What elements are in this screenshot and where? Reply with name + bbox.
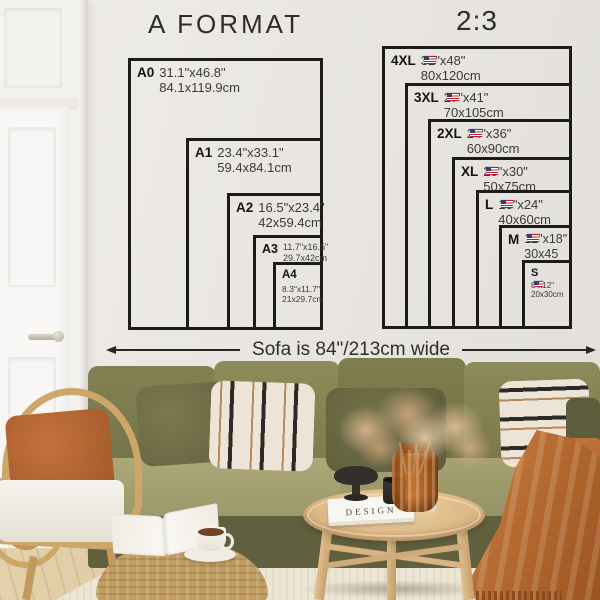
bowl-foot (344, 494, 368, 501)
size-dims-l: 16"x24"40x60cm (498, 197, 567, 228)
size-label-4xl: 4XL (391, 53, 416, 84)
us-flag-icon (470, 129, 482, 137)
size-label-a1: A1 (195, 145, 212, 176)
poster-size-guide-image: A FORMAT A031.1"x46.8"84.1x119.9cm A123.… (0, 0, 600, 600)
size-dims-s: 8"x12"20x30cm (531, 281, 567, 300)
us-flag-icon (527, 234, 539, 242)
coffee-cup (196, 527, 226, 551)
size-dims-a4: 8.3"x11.7"21x29.7cm (282, 284, 318, 304)
flower-puff (398, 414, 452, 462)
ratio-title: 2:3 (382, 5, 572, 37)
door-lintel (0, 98, 82, 107)
size-label-a2: A2 (236, 200, 253, 231)
size-dims-4xl: 32"x48"80x120cm (421, 53, 567, 84)
size-dims-a2: 16.5"x23.4"42x59.4cm (258, 200, 324, 231)
wall-panel-molding (4, 8, 62, 88)
us-flag-icon (486, 167, 498, 175)
chair-seat-cushion (0, 480, 124, 542)
size-dims-3xl: 27"x41"70x105cm (444, 90, 567, 121)
door-handle (28, 334, 60, 340)
size-label-l: L (485, 197, 493, 228)
a-format-title: A FORMAT (128, 9, 323, 40)
us-flag-icon (534, 281, 543, 287)
us-flag-icon (447, 93, 459, 101)
us-flag-icon (424, 56, 436, 64)
striped-pillow (208, 380, 315, 472)
size-label-2xl: 2XL (437, 126, 462, 157)
size-label-3xl: 3XL (414, 90, 439, 121)
size-label-a0: A0 (137, 65, 154, 96)
flower-puff (448, 428, 492, 468)
arrow-line (462, 349, 586, 351)
book-page (111, 514, 167, 557)
size-box-s: S8"x12"20x30cm (522, 260, 572, 329)
size-label-a3: A3 (262, 242, 278, 263)
size-dims-2xl: 24"x36"60x90cm (467, 126, 567, 157)
us-flag-icon (501, 200, 513, 208)
size-label-m: M (508, 232, 519, 262)
arrow-line (116, 349, 240, 351)
arrow-left-icon (106, 346, 116, 354)
door-panel-upper (8, 127, 56, 287)
size-label-s: S (531, 267, 567, 280)
size-box-a4: A48.3"x11.7"21x29.7cm (273, 262, 323, 330)
flower-puff (356, 428, 404, 468)
size-dims-a0: 31.1"x46.8"84.1x119.9cm (159, 65, 318, 96)
size-dims-a3: 11.7"x16.5"29.7x42cm (283, 242, 328, 263)
size-dims-a1: 23.4"x33.1"59.4x84.1cm (217, 145, 318, 176)
size-label-a4: A4 (282, 269, 318, 283)
arrow-right-icon (586, 346, 596, 354)
dried-flowers (330, 386, 490, 476)
size-dims-m: 12"x18"30x45 (524, 232, 567, 262)
